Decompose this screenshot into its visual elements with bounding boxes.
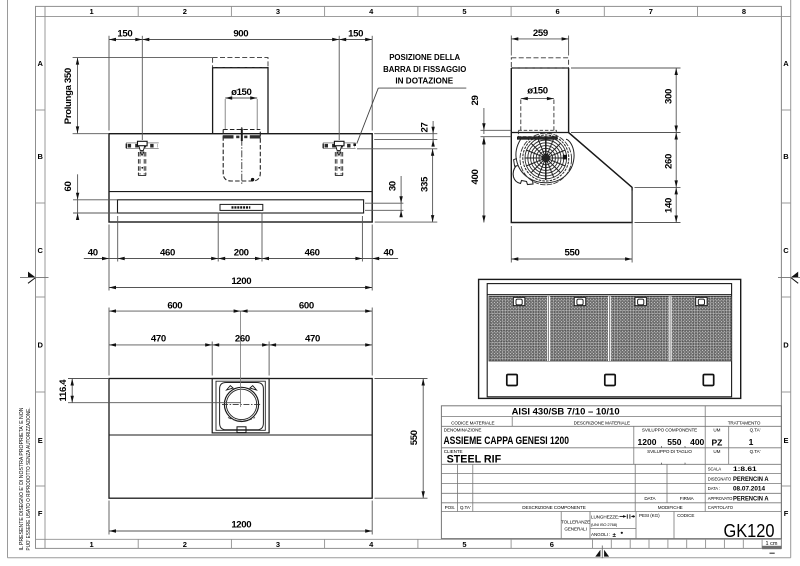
svg-text:300: 300	[664, 89, 675, 104]
svg-text:600: 600	[167, 300, 182, 311]
svg-text:550: 550	[667, 437, 681, 447]
svg-text:DATA :: DATA :	[708, 486, 720, 491]
svg-text:±: ±	[613, 532, 617, 539]
svg-text:DESCRIZIONE COMPONENTE: DESCRIZIONE COMPONENTE	[522, 505, 585, 510]
svg-text:DISEGNATO: DISEGNATO	[708, 477, 732, 482]
svg-text:(UNI ISO 2768): (UNI ISO 2768)	[591, 522, 618, 527]
svg-text:5: 5	[462, 540, 466, 549]
svg-text:B: B	[37, 152, 43, 161]
svg-text:40: 40	[384, 247, 394, 258]
svg-text:1: 1	[749, 437, 754, 447]
svg-text:08.07.2014: 08.07.2014	[733, 486, 766, 493]
svg-text:SVILUPPO DI TAGLIO: SVILUPPO DI TAGLIO	[647, 449, 692, 454]
svg-text:UM: UM	[713, 449, 720, 454]
svg-text:CODICE MATERIALE: CODICE MATERIALE	[451, 420, 494, 425]
svg-text:PERENCIN A: PERENCIN A	[733, 476, 769, 483]
svg-text:,: ,	[684, 442, 686, 449]
svg-text:PZ: PZ	[711, 437, 722, 447]
svg-text:460: 460	[305, 247, 320, 258]
svg-text:29: 29	[470, 96, 481, 106]
svg-text:116.4: 116.4	[58, 379, 69, 402]
svg-text:1200: 1200	[231, 276, 251, 287]
svg-text:E: E	[783, 436, 788, 445]
svg-text:40: 40	[88, 247, 98, 258]
svg-text:140: 140	[664, 198, 675, 213]
svg-text:400: 400	[690, 437, 704, 447]
svg-text:LUNGHEZZE:: LUNGHEZZE:	[591, 515, 619, 520]
svg-text:400: 400	[470, 170, 481, 185]
svg-text:6: 6	[556, 7, 560, 16]
svg-text:Q.TA': Q.TA'	[460, 505, 471, 510]
svg-text:E: E	[38, 436, 43, 445]
svg-text:150: 150	[117, 29, 132, 40]
svg-text:GK120: GK120	[724, 521, 775, 541]
svg-text:C: C	[37, 246, 43, 255]
svg-text:A: A	[783, 59, 789, 68]
svg-text:150: 150	[348, 29, 363, 40]
svg-text:PUO' ESSERE USATO O RIPRODOTTO: PUO' ESSERE USATO O RIPRODOTTO SENZA AUT…	[26, 407, 32, 550]
svg-text:550: 550	[409, 430, 420, 445]
svg-text:,: ,	[661, 459, 663, 466]
svg-text:A: A	[37, 59, 43, 68]
svg-text:B: B	[783, 152, 789, 161]
svg-text:3: 3	[276, 7, 280, 16]
svg-text:1: 1	[90, 7, 94, 16]
svg-text:SVILUPPO COMPONENTE: SVILUPPO COMPONENTE	[642, 428, 697, 433]
svg-text:PESI (KG): PESI (KG)	[639, 513, 660, 518]
svg-text:STEEL RIF: STEEL RIF	[447, 454, 502, 466]
svg-text:2: 2	[183, 540, 187, 549]
svg-text:470: 470	[305, 334, 320, 345]
svg-text:DATA: DATA	[644, 496, 656, 501]
svg-text:ø150: ø150	[231, 87, 251, 98]
svg-text:260: 260	[235, 334, 250, 345]
svg-text:Prolunga 350: Prolunga 350	[63, 68, 74, 124]
svg-text:Q.TA': Q.TA'	[750, 449, 761, 454]
svg-text:ANGOLI :: ANGOLI :	[591, 532, 610, 537]
svg-text:260: 260	[664, 154, 675, 169]
svg-text:PERENCIN A: PERENCIN A	[733, 496, 769, 503]
svg-text:POSIZIONE DELLA: POSIZIONE DELLA	[389, 52, 460, 62]
svg-text:AISI 430/SB 7/10 – 10/10: AISI 430/SB 7/10 – 10/10	[512, 407, 620, 417]
svg-text:,: ,	[661, 442, 663, 449]
svg-text:460: 460	[160, 247, 175, 258]
svg-text:600: 600	[299, 300, 314, 311]
svg-text:POS.: POS.	[445, 505, 456, 510]
svg-text:900: 900	[233, 29, 248, 40]
svg-text:1:8.61: 1:8.61	[733, 466, 757, 473]
svg-text:DENOMINAZIONE: DENOMINAZIONE	[444, 428, 482, 433]
svg-text:1200: 1200	[231, 520, 251, 531]
svg-text:SCALA: SCALA	[708, 467, 722, 472]
svg-text:27: 27	[420, 123, 431, 133]
svg-text:470: 470	[151, 334, 166, 345]
svg-text:APPROVATO: APPROVATO	[708, 496, 733, 501]
svg-text:8: 8	[742, 7, 746, 16]
svg-text:3: 3	[276, 540, 280, 549]
svg-text:30: 30	[387, 181, 398, 191]
svg-text:5: 5	[462, 7, 466, 16]
svg-text:TOLLERANZE: TOLLERANZE	[561, 520, 590, 525]
svg-text:IN DOTAZIONE: IN DOTAZIONE	[395, 76, 453, 86]
svg-text:7: 7	[649, 7, 653, 16]
svg-text:259: 259	[533, 28, 548, 39]
svg-text:CODICE: CODICE	[677, 513, 694, 518]
svg-text:335: 335	[420, 176, 431, 192]
svg-text:200: 200	[234, 247, 249, 258]
svg-text:C: C	[783, 246, 789, 255]
svg-text:60: 60	[63, 182, 74, 192]
svg-text:6: 6	[550, 540, 554, 549]
svg-text:CAPITOLATO: CAPITOLATO	[708, 505, 734, 510]
svg-text:2: 2	[183, 7, 187, 16]
svg-text:BARRA DI FISSAGGIO: BARRA DI FISSAGGIO	[383, 64, 466, 74]
svg-text:MODIFICHE: MODIFICHE	[658, 505, 683, 510]
svg-text:Q.TA': Q.TA'	[750, 428, 761, 433]
svg-text:UM: UM	[713, 428, 720, 433]
svg-text:TRATTAMENTO: TRATTAMENTO	[728, 420, 761, 425]
svg-text:DESCRIZIONE MATERIALE: DESCRIZIONE MATERIALE	[574, 420, 630, 425]
svg-text:IL PRESENTE DISEGNO E' DI NOST: IL PRESENTE DISEGNO E' DI NOSTRA PROPRIE…	[19, 408, 25, 551]
svg-text:F: F	[784, 509, 789, 518]
svg-text:GENERALI: GENERALI	[564, 527, 586, 532]
svg-text:D: D	[37, 340, 43, 349]
svg-text:ø150: ø150	[527, 85, 547, 96]
svg-text:1200: 1200	[638, 437, 657, 447]
svg-text:FIRMA: FIRMA	[680, 496, 695, 501]
svg-text:1: 1	[90, 540, 94, 549]
svg-text:550: 550	[565, 247, 580, 258]
svg-text:ASSIEME CAPPA GENESI 1200: ASSIEME CAPPA GENESI 1200	[444, 435, 570, 447]
svg-text:D: D	[783, 340, 789, 349]
svg-text:F: F	[38, 509, 43, 518]
svg-text:,: ,	[684, 459, 686, 466]
